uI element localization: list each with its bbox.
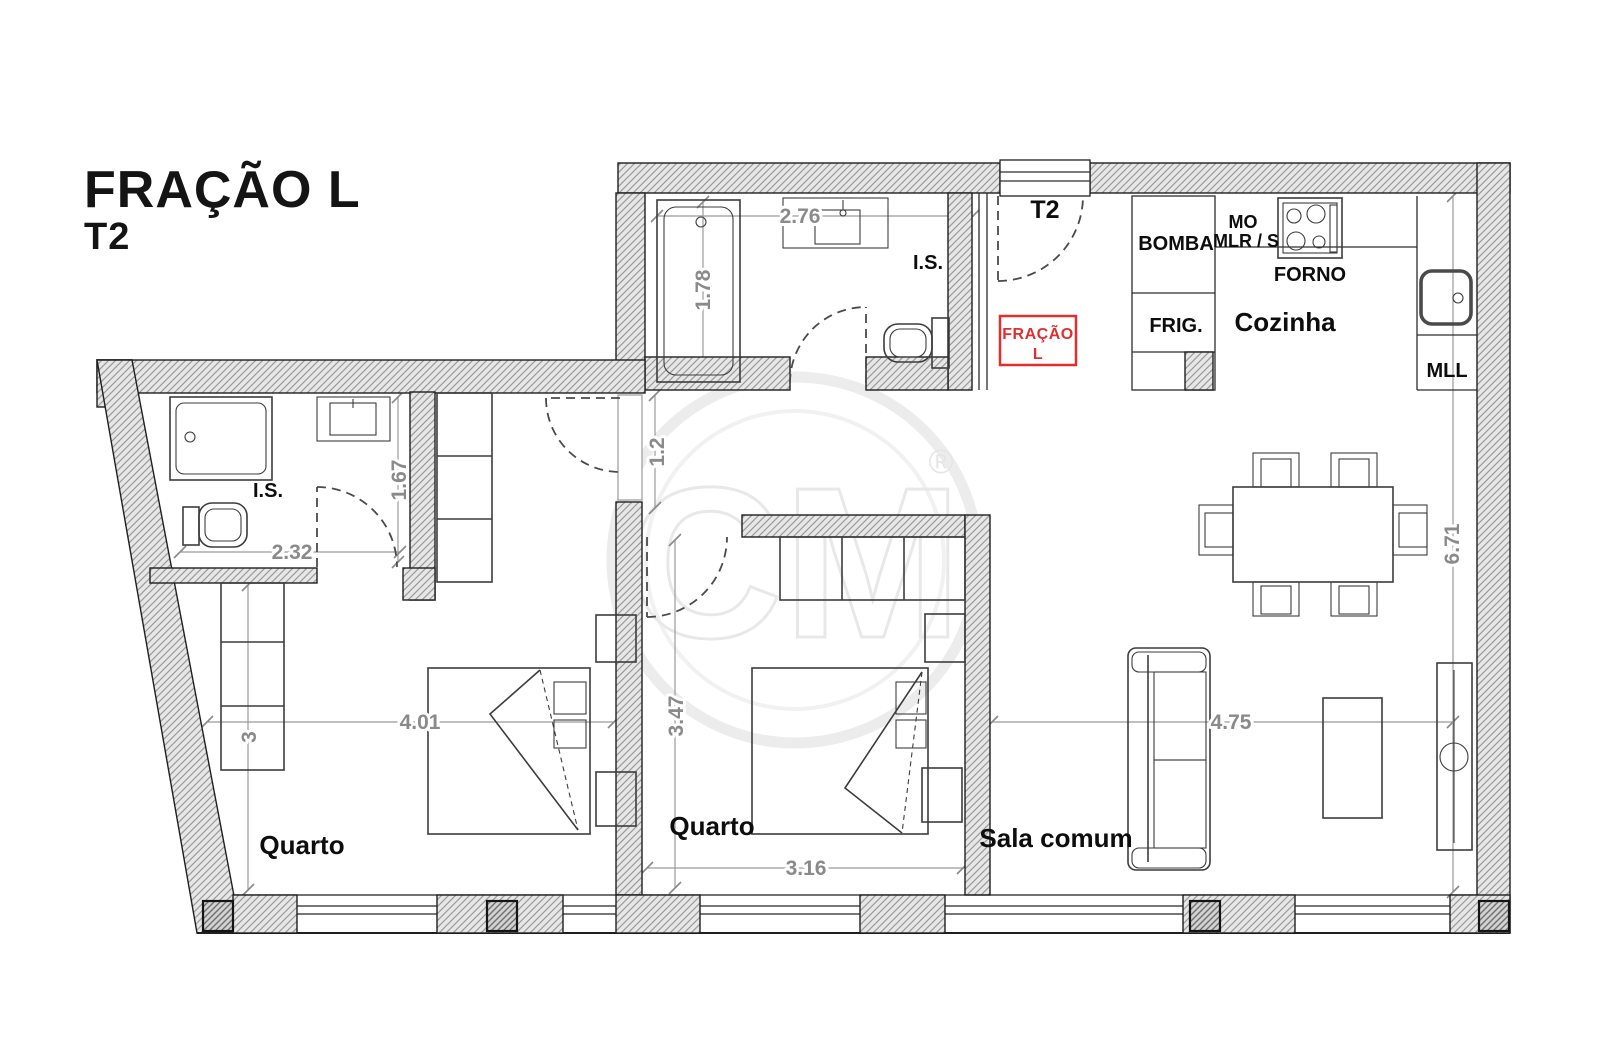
room-label-living: Sala comum: [979, 823, 1132, 853]
kitchen-label-mo: MO: [1229, 212, 1258, 232]
unit-tag-line2: L: [1033, 346, 1043, 363]
wardrobe: [437, 393, 492, 582]
dim-living-width: 4.75: [1211, 711, 1252, 734]
dining-chair: [1253, 582, 1299, 616]
structural-column: [1190, 901, 1220, 931]
room-label-bathroom-top: I.S.: [913, 252, 943, 274]
wall-bathroom-top-south-a: [645, 357, 790, 390]
plan-title-line1: FRAÇÃO L: [84, 160, 361, 219]
dining-chair: [1199, 505, 1233, 555]
wall-pier: [860, 895, 945, 933]
room-label-bedroom-middle: Quarto: [669, 811, 754, 841]
wall-bedroom-divider: [616, 502, 642, 895]
bathroom-left-door-swing: [317, 487, 397, 567]
wall-right: [1477, 163, 1510, 933]
stove-icon: [1278, 198, 1342, 258]
dim-living-height: 6.71: [1441, 523, 1464, 564]
tv-sideboard: [1437, 663, 1472, 850]
dining-chair: [1331, 453, 1377, 487]
cm-watermark: CM ®: [612, 377, 978, 743]
wall-bathroom-left-foot: [403, 568, 435, 600]
plan-title: FRAÇÃO L T2: [84, 160, 361, 258]
coffee-table: [1323, 698, 1382, 818]
wall-bathroom-left-south: [150, 568, 317, 583]
watermark-text: CM: [628, 442, 962, 683]
wall-top-right-segment: [1090, 163, 1510, 193]
structural-column: [203, 901, 233, 931]
shower-icon: [170, 397, 272, 480]
wall-bedroom-mid-north: [742, 515, 965, 537]
dim-bath-left-width: 2.32: [272, 541, 313, 564]
wall-pier: [616, 895, 700, 933]
wall-bathroom-top-east: [948, 193, 972, 390]
unit-tag-line1: FRAÇÃO: [1002, 323, 1073, 343]
bed: [428, 668, 590, 834]
wall-top-left-segment: [618, 163, 1000, 193]
structural-column: [487, 901, 517, 931]
kitchen-sink-icon: [1421, 271, 1471, 324]
living-room-furniture: [1128, 453, 1472, 870]
dim-bedroom-mid-height: 3.47: [665, 696, 688, 737]
wall-pier: [233, 895, 297, 933]
bedroom-left-doorway: [618, 395, 642, 500]
window-band: [197, 895, 1510, 933]
kitchen-duct: [1185, 352, 1213, 390]
kitchen-area: [1132, 196, 1477, 390]
dim-bath-top-height: 1.78: [692, 269, 715, 310]
room-label-bedroom-left: Quarto: [259, 830, 344, 860]
bed: [752, 668, 928, 834]
wall-north-left-wing: [97, 360, 645, 393]
kitchen-label-mll: MLL: [1426, 360, 1467, 382]
entrance-label: T2: [1030, 196, 1059, 224]
dining-table: [1233, 487, 1393, 582]
dim-bath-top-width: 2.76: [780, 205, 821, 228]
floor-plan-drawing: CM ®: [0, 0, 1600, 1062]
wall-slanted-west: [97, 360, 235, 933]
kitchen-label-forno: FORNO: [1274, 264, 1346, 286]
dim-hall-height: 1.2: [646, 437, 669, 466]
floor-plan-page: CM ®: [0, 0, 1600, 1062]
structural-column: [1479, 901, 1509, 931]
dim-bedroom-left-height: 3: [238, 731, 261, 743]
dining-chair: [1393, 505, 1427, 555]
room-label-bathroom-left: I.S.: [253, 480, 283, 502]
toilet-icon: [183, 503, 247, 547]
plan-title-line2: T2: [84, 216, 130, 258]
kitchen-label-bomba: BOMBA: [1138, 233, 1214, 255]
sofa: [1128, 648, 1210, 870]
kitchen-label-mlrs: MLR / S: [1213, 231, 1279, 251]
dim-bath-left-height: 1.67: [388, 460, 411, 501]
registered-mark: ®: [928, 443, 953, 481]
wall-bathroom-top-west: [616, 193, 645, 363]
unit-tag: FRAÇÃO L: [1000, 316, 1076, 365]
dining-chair: [1253, 453, 1299, 487]
entrance-door-frame: [1000, 160, 1090, 196]
bedroom-left-door-swing: [546, 398, 620, 472]
bathroom-top-door-swing: [790, 307, 866, 383]
washbasin-icon: [317, 397, 390, 441]
room-label-kitchen: Cozinha: [1234, 307, 1336, 337]
dim-bedroom-mid-width: 3.16: [786, 857, 827, 880]
dim-bedroom-left-width: 4.01: [400, 711, 441, 734]
bathroom-left-fixtures: [170, 397, 390, 547]
kitchen-label-frig: FRIG.: [1149, 315, 1202, 337]
dining-chair: [1331, 582, 1377, 616]
